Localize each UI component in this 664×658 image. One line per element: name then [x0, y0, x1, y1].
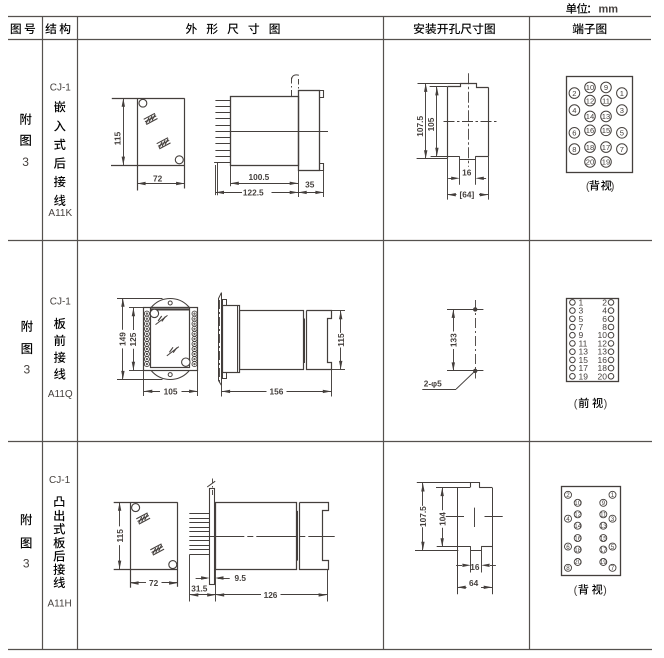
- svg-text:1: 1: [611, 492, 615, 499]
- svg-text:1: 1: [620, 89, 624, 98]
- svg-text:20: 20: [574, 559, 581, 566]
- svg-text:20: 20: [598, 371, 608, 381]
- svg-text:122.5: 122.5: [243, 188, 264, 198]
- svg-text:): ): [604, 398, 608, 410]
- svg-text:[64]: [64]: [460, 190, 475, 200]
- svg-text:125: 125: [128, 332, 138, 346]
- svg-text:16: 16: [586, 126, 594, 135]
- svg-text:8: 8: [566, 565, 570, 572]
- svg-text:11: 11: [602, 96, 610, 105]
- svg-text:): ): [611, 180, 615, 192]
- svg-text:7: 7: [620, 145, 624, 154]
- svg-text:5: 5: [611, 544, 615, 551]
- svg-text:17: 17: [602, 143, 610, 152]
- svg-text:14: 14: [586, 112, 594, 121]
- svg-text:19: 19: [579, 371, 589, 381]
- svg-text:11: 11: [600, 512, 607, 519]
- svg-text:10: 10: [586, 83, 594, 92]
- svg-text:2: 2: [566, 492, 570, 499]
- svg-text:20: 20: [586, 158, 594, 167]
- svg-text:107.5: 107.5: [418, 506, 428, 527]
- svg-text:72: 72: [153, 173, 163, 183]
- svg-text:3: 3: [22, 155, 29, 169]
- svg-text:14: 14: [574, 523, 581, 530]
- svg-text:10: 10: [574, 500, 581, 507]
- svg-text:A11H: A11H: [47, 599, 71, 610]
- svg-text:16: 16: [462, 168, 472, 178]
- svg-text:3: 3: [23, 556, 30, 570]
- svg-text:): ): [603, 584, 607, 596]
- svg-text:126: 126: [264, 590, 278, 600]
- svg-text:9: 9: [602, 500, 606, 507]
- svg-text:17: 17: [600, 547, 607, 554]
- svg-text:4: 4: [566, 516, 570, 523]
- svg-text:105: 105: [164, 387, 178, 397]
- svg-text:A11K: A11K: [48, 208, 72, 219]
- svg-text:mm: mm: [599, 3, 619, 15]
- svg-text:(: (: [574, 584, 578, 596]
- svg-text:13: 13: [602, 112, 610, 121]
- svg-text:107.5: 107.5: [415, 116, 425, 137]
- svg-text:CJ-1: CJ-1: [49, 475, 71, 486]
- svg-text:31.5: 31.5: [191, 584, 208, 594]
- svg-text:133: 133: [448, 333, 458, 347]
- svg-text:149: 149: [118, 332, 128, 346]
- svg-text:72: 72: [149, 578, 159, 588]
- svg-text:156: 156: [269, 387, 283, 397]
- svg-text:3: 3: [620, 106, 624, 115]
- svg-text:3: 3: [23, 362, 30, 376]
- svg-text:6: 6: [572, 129, 576, 138]
- svg-text:105: 105: [426, 117, 436, 131]
- svg-text:16: 16: [574, 535, 581, 542]
- svg-text:19: 19: [602, 158, 610, 167]
- svg-text:CJ-1: CJ-1: [50, 297, 72, 308]
- svg-text:115: 115: [115, 529, 125, 543]
- svg-text:CJ-1: CJ-1: [50, 83, 72, 94]
- svg-text:15: 15: [602, 126, 610, 135]
- svg-text:9.5: 9.5: [235, 573, 247, 583]
- svg-text:5: 5: [620, 129, 624, 138]
- svg-text:100.5: 100.5: [249, 172, 270, 182]
- svg-text:7: 7: [611, 565, 615, 572]
- svg-text:35: 35: [305, 180, 315, 190]
- svg-text:19: 19: [600, 559, 607, 566]
- svg-text:104: 104: [438, 512, 448, 526]
- svg-text:(: (: [574, 398, 578, 410]
- svg-text:4: 4: [572, 106, 576, 115]
- svg-text:64: 64: [469, 578, 479, 588]
- svg-text:16: 16: [470, 562, 480, 572]
- svg-text:6: 6: [566, 544, 570, 551]
- svg-text:12: 12: [586, 96, 594, 105]
- svg-text:9: 9: [604, 83, 608, 92]
- svg-text:2-φ5: 2-φ5: [424, 379, 442, 389]
- svg-text:8: 8: [572, 145, 576, 154]
- svg-text:3: 3: [611, 516, 615, 523]
- svg-text:115: 115: [113, 131, 123, 145]
- svg-text:18: 18: [574, 547, 581, 554]
- svg-text:(: (: [586, 180, 590, 192]
- svg-text:12: 12: [574, 512, 581, 519]
- svg-text:15: 15: [600, 535, 607, 542]
- svg-text:13: 13: [600, 523, 607, 530]
- svg-text:A11Q: A11Q: [48, 389, 73, 400]
- svg-text:115: 115: [336, 333, 346, 347]
- svg-text:2: 2: [572, 89, 576, 98]
- svg-text:18: 18: [586, 143, 594, 152]
